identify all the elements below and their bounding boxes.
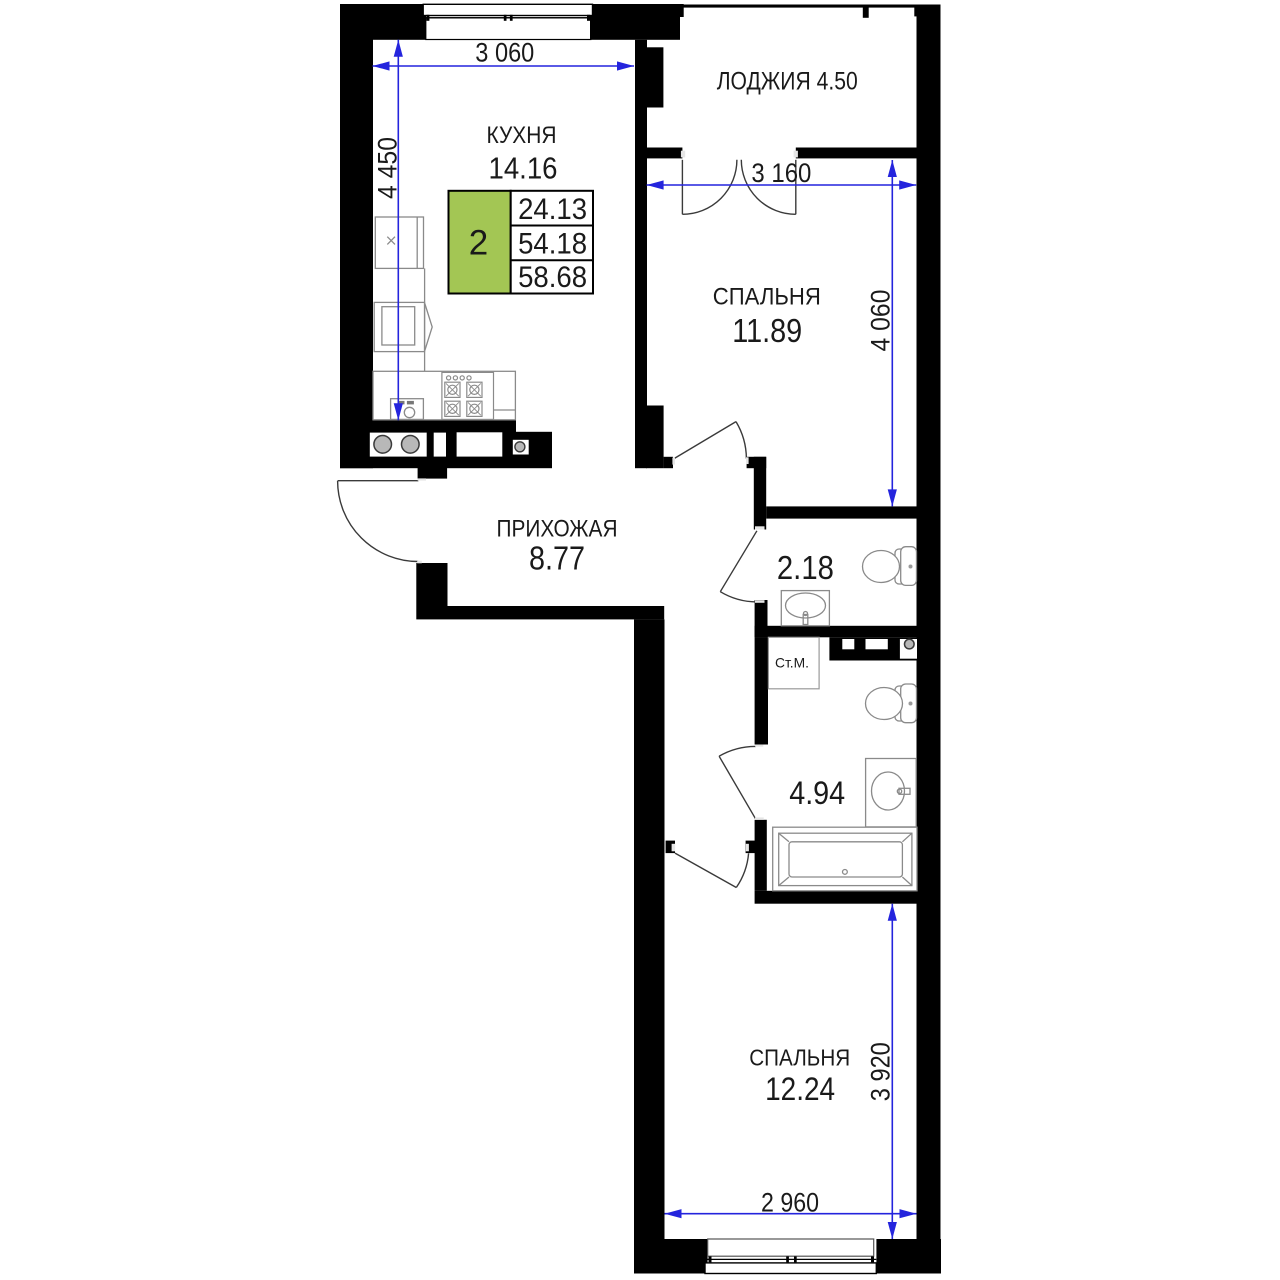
svg-text:2.18: 2.18	[777, 549, 834, 586]
svg-text:КУХНЯ: КУХНЯ	[487, 122, 557, 149]
svg-text:24.13: 24.13	[518, 193, 587, 226]
svg-text:СПАЛЬНЯ: СПАЛЬНЯ	[713, 284, 821, 311]
svg-text:12.24: 12.24	[765, 1071, 835, 1107]
svg-text:3 160: 3 160	[751, 158, 811, 188]
svg-text:54.18: 54.18	[518, 227, 587, 260]
svg-text:11.89: 11.89	[732, 312, 802, 349]
svg-text:4.94: 4.94	[789, 775, 845, 811]
svg-text:2 960: 2 960	[761, 1187, 819, 1217]
svg-text:Ст.М.: Ст.М.	[775, 654, 809, 670]
svg-text:ЛОДЖИЯ 4.50: ЛОДЖИЯ 4.50	[717, 68, 858, 96]
svg-text:2: 2	[469, 224, 488, 263]
svg-text:4 060: 4 060	[866, 290, 896, 352]
svg-text:14.16: 14.16	[489, 151, 558, 186]
svg-text:ПРИХОЖАЯ: ПРИХОЖАЯ	[497, 516, 618, 543]
svg-text:3 060: 3 060	[475, 37, 534, 67]
svg-text:СПАЛЬНЯ: СПАЛЬНЯ	[749, 1044, 850, 1070]
svg-text:3 920: 3 920	[866, 1042, 896, 1101]
svg-text:58.68: 58.68	[518, 261, 587, 294]
svg-text:8.77: 8.77	[529, 540, 585, 577]
svg-text:4 450: 4 450	[373, 137, 403, 199]
